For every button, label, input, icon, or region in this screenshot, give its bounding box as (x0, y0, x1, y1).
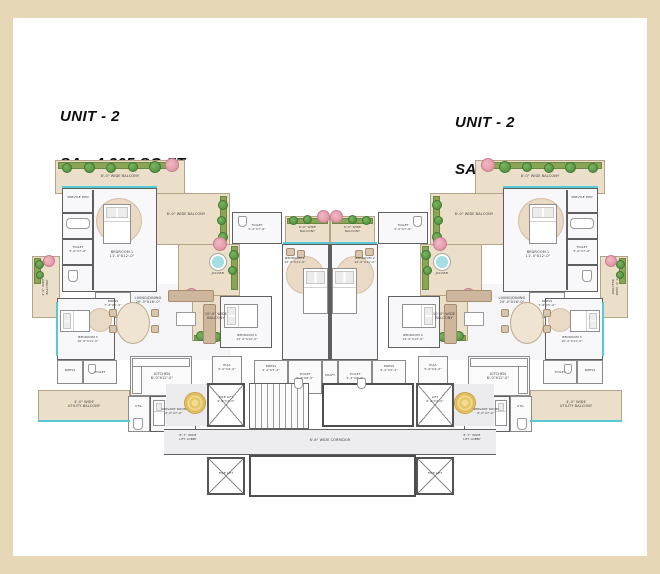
label-room: KITCHEN 8'-0"X12'-0" (476, 370, 520, 382)
label-balcony: 10'-0" WIDE BALCONY (422, 310, 466, 322)
jacuzzi-left (210, 254, 226, 270)
plant-bush (303, 215, 312, 224)
glass-wall (331, 242, 377, 244)
label-balcony: 4'-0" WIDE UTILITY BALCONY (44, 397, 124, 411)
glass-wall (530, 420, 622, 422)
coffee-table (176, 312, 196, 326)
wc (517, 418, 527, 430)
label-room: SHAFT (319, 372, 341, 380)
label-room: DRESS (58, 366, 82, 376)
label-jacuzzi: JACUZZI (204, 271, 232, 277)
plant-bush (421, 250, 431, 260)
label-room: SERVICE DEN (63, 193, 93, 203)
plant-flower (433, 237, 447, 251)
shaft-box-top (322, 383, 414, 427)
label-room: BEDROOM 2 12'-0"X11'-0" (282, 254, 308, 268)
label-balcony: 10'-0" WIDE BALCONY (194, 310, 238, 322)
glass-wall (283, 242, 329, 244)
label-room: TOILET 5'-0"X7'-6" (236, 222, 278, 234)
label-balcony: 4'-0" WIDE BALCONY (38, 267, 54, 307)
wc (133, 418, 143, 430)
label-balcony: 6'-0" WIDE BALCONY (331, 224, 374, 236)
wall (62, 238, 92, 240)
coffee-table (464, 312, 484, 326)
floor-plan: 8'-0" WIDE BALCONY8'-0" WIDE BALCONY10'-… (0, 0, 660, 574)
label-room: PUJA 5'-0"X4'-0" (420, 362, 446, 374)
jacuzzi-right (434, 254, 450, 270)
label-lift: LIFT 6'-6"X7'-0" (418, 394, 452, 406)
chair (109, 325, 117, 333)
wall (92, 190, 94, 290)
label-room: DRESS 5'-2"X3'-2" (374, 364, 404, 374)
label-room: BEDROOM 1 11'-0"X12'-0" (96, 248, 148, 260)
wall (566, 190, 568, 290)
plant-flower (317, 210, 330, 223)
bed-bedroom1-left (103, 204, 131, 244)
bed-bedroom3-left (60, 310, 90, 332)
bed-bedroom2-right (332, 268, 357, 314)
label-room: TOILET (86, 368, 114, 378)
bathtub-right (570, 218, 594, 229)
kitchen-counter (132, 358, 190, 367)
plant-flower (213, 237, 227, 251)
label-room: KITCHEN 8'-0"X12'-0" (140, 370, 184, 382)
label-room: TOILET 5'-2"X8'-0" (340, 372, 370, 382)
wall (62, 212, 92, 214)
chair (543, 325, 551, 333)
label-balcony: 8'-0" WIDE BALCONY (490, 171, 590, 181)
plant-bush (434, 216, 443, 225)
plant-bush (218, 200, 228, 210)
plant-bush (229, 250, 239, 260)
label-room: BEDROOM 3 10'-0"X11'-0" (66, 334, 110, 346)
label-balcony: 4'-0" WIDE UTILITY BALCONY (536, 397, 616, 411)
label-lift: FIRE LIFT (209, 468, 243, 480)
label-room: SERVANT ROOM 6'-0"X7'-0" (466, 406, 506, 418)
label-lobby: 8'-7" WIDE LIFT LOBBY (452, 431, 492, 445)
label-room: BEDROOM 4 12'-0"X12'-0" (392, 332, 434, 344)
chair (109, 309, 117, 317)
glass-wall (62, 186, 157, 188)
kitchen-counter (470, 358, 528, 367)
chair (501, 309, 509, 317)
label-lobby: 8'-7" WIDE LIFT LOBBY (168, 431, 208, 445)
label-room: BEDROOM 1 11'-0"X12'-0" (512, 248, 564, 260)
wc (68, 270, 78, 282)
label-room: BEDROOM 4 12'-0"X12'-0" (226, 332, 268, 344)
plant-flower (330, 210, 343, 223)
wall (568, 212, 598, 214)
label-room: TOILET 5'-0"X7'-6" (63, 244, 93, 256)
plant-flower (43, 255, 55, 267)
plant-flower (481, 158, 495, 172)
label-room: LIVING/DINING 20'-0"X16'-0" (482, 294, 542, 306)
label-room: BEDROOM 2 12'-0"X11'-0" (352, 254, 378, 268)
label-room: SERVICE DEN (567, 193, 597, 203)
label-room: BEDROOM 3 10'-0"X11'-0" (550, 334, 594, 346)
label-room: UTIL. (510, 402, 532, 412)
glass-wall (503, 186, 598, 188)
chair (501, 325, 509, 333)
bed-bedroom1-right (529, 204, 557, 244)
label-room: DRESS 5'-2"X3'-2" (256, 364, 286, 374)
label-balcony: 8'-0" WIDE BALCONY (155, 209, 217, 219)
wall (568, 264, 598, 266)
label-room: TOILET 5'-0"X7'-6" (567, 244, 597, 256)
label-room: DRESS (578, 366, 602, 376)
rug (548, 308, 572, 332)
plant-bush (432, 200, 442, 210)
bed-bedroom3-right (570, 310, 600, 332)
label-room: UTIL. (128, 402, 150, 412)
wall (62, 264, 92, 266)
glass-wall (602, 302, 604, 356)
label-lift: FIRE LIFT 5'-8"X7'-0" (209, 394, 243, 406)
glass-wall (56, 302, 58, 356)
label-corridor: 6'-6" WIDE CORRIDOR (280, 435, 380, 445)
chair (151, 309, 159, 317)
label-lift: FIRE LIFT (418, 468, 452, 480)
label-balcony: 8'-0" WIDE BALCONY (443, 209, 505, 219)
bathtub-left (66, 218, 90, 229)
wall (568, 238, 598, 240)
plant-flower (165, 158, 179, 172)
label-room: SERVANT ROOM 6'-0"X7'-0" (154, 406, 194, 418)
staircase (249, 383, 309, 429)
label-balcony: 4'-0" WIDE BALCONY (606, 267, 622, 307)
glass-wall (38, 420, 130, 422)
label-room: LIVING/DINING 20'-0"X16'-0" (118, 294, 178, 306)
label-room: TOILET 5'-2"X8'-0" (290, 372, 320, 382)
label-balcony: 8'-0" WIDE BALCONY (70, 171, 170, 181)
bed-bedroom2-left (303, 268, 328, 314)
chair (543, 309, 551, 317)
label-room: TOILET 5'-0"X7'-6" (382, 222, 424, 234)
plant-bush (348, 215, 357, 224)
chair (151, 325, 159, 333)
wc (582, 270, 592, 282)
shaft-box-bottom (249, 455, 416, 497)
label-room: PUJA 5'-0"X4'-0" (214, 362, 240, 374)
label-jacuzzi: JACUZZI (428, 271, 456, 277)
plant-flower (605, 255, 617, 267)
label-balcony: 6'-0" WIDE BALCONY (286, 224, 329, 236)
plant-bush (217, 216, 226, 225)
label-room: TOILET (546, 368, 574, 378)
